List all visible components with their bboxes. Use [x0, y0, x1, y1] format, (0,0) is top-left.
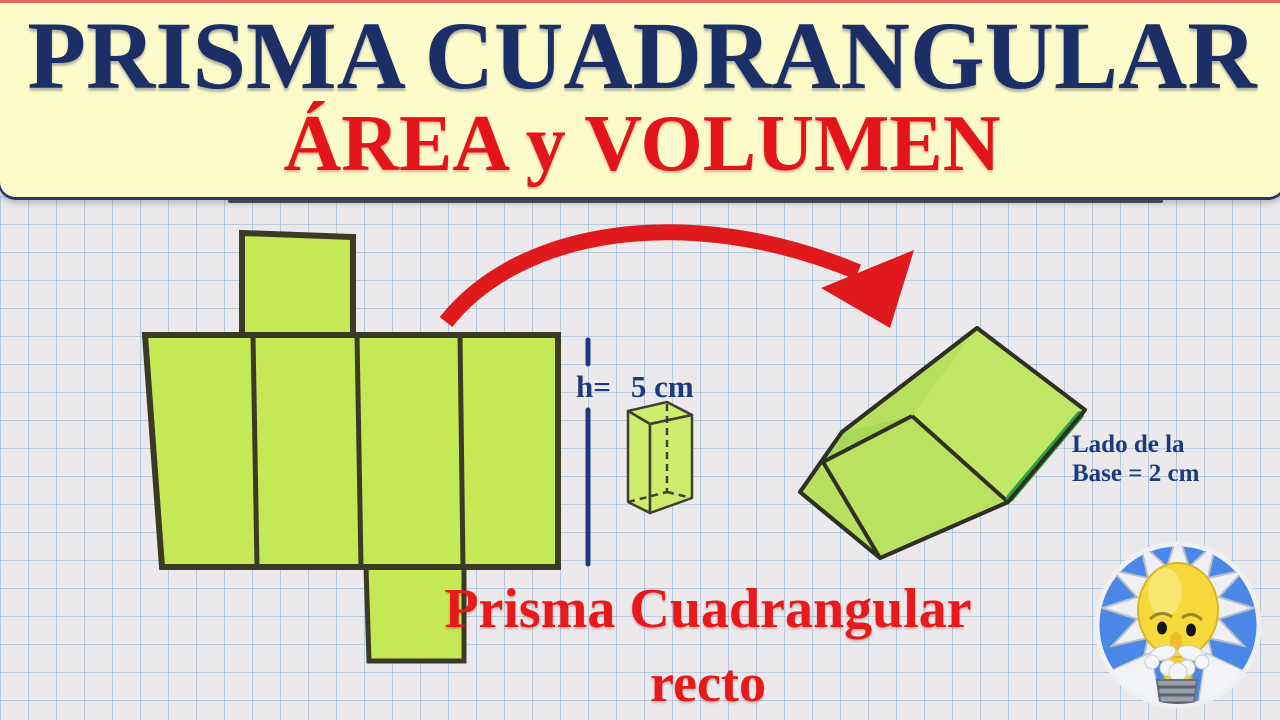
height-label: h=5 cm [576, 369, 694, 405]
caption-line1: Prisma Cuadrangular [428, 577, 988, 641]
top-accent-line [0, 0, 1280, 3]
base-side-label: Lado de la Base = 2 cm [1072, 430, 1199, 488]
base-side-label-line2: Base = 2 cm [1072, 459, 1199, 488]
small-prism-figure [628, 402, 692, 513]
height-label-value: 5 cm [631, 369, 694, 404]
small-prism-right-face [650, 415, 692, 513]
folded-prism-figure [800, 328, 1085, 558]
height-label-symbol: h= [576, 369, 611, 404]
header-banner: PRISMA CUADRANGULAR ÁREA y VOLUMEN [0, 0, 1280, 200]
lightbulb-face-icon [1138, 563, 1218, 682]
caption-line2: recto [428, 652, 988, 714]
net-top-flap [242, 233, 353, 335]
net-lateral-faces [145, 335, 558, 567]
thumbnail-canvas: PRISMA CUADRANGULAR ÁREA y VOLUMEN [0, 0, 1280, 720]
base-side-label-line1: Lado de la [1072, 430, 1199, 459]
small-prism-front-face [628, 411, 650, 513]
net-divider-3 [460, 335, 463, 567]
page-title: PRISMA CUADRANGULAR [0, 8, 1280, 104]
curved-arrow-icon [446, 232, 914, 328]
einstein-lightbulb-logo [1097, 532, 1259, 710]
page-subtitle: ÁREA y VOLUMEN [0, 104, 1280, 184]
